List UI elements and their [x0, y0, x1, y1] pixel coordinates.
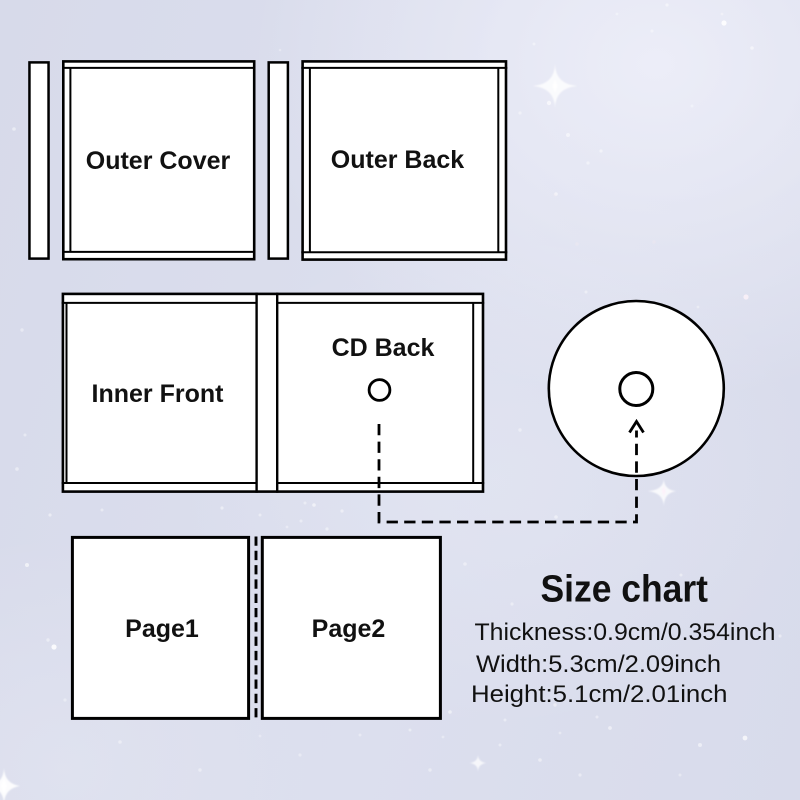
svg-text:Height:5.1cm/2.01inch: Height:5.1cm/2.01inch — [471, 681, 728, 708]
svg-text:Outer Back: Outer Back — [331, 146, 464, 174]
svg-text:Size chart: Size chart — [541, 569, 709, 611]
svg-text:Thickness:0.9cm/0.354inch: Thickness:0.9cm/0.354inch — [475, 619, 776, 646]
svg-text:Inner Front: Inner Front — [92, 380, 225, 408]
svg-text:Page2: Page2 — [312, 615, 386, 643]
svg-text:CD Back: CD Back — [332, 334, 435, 362]
svg-text:Outer Cover: Outer Cover — [86, 147, 231, 175]
svg-text:Width:5.3cm/2.09inch: Width:5.3cm/2.09inch — [476, 651, 721, 678]
svg-text:Page1: Page1 — [125, 615, 199, 643]
